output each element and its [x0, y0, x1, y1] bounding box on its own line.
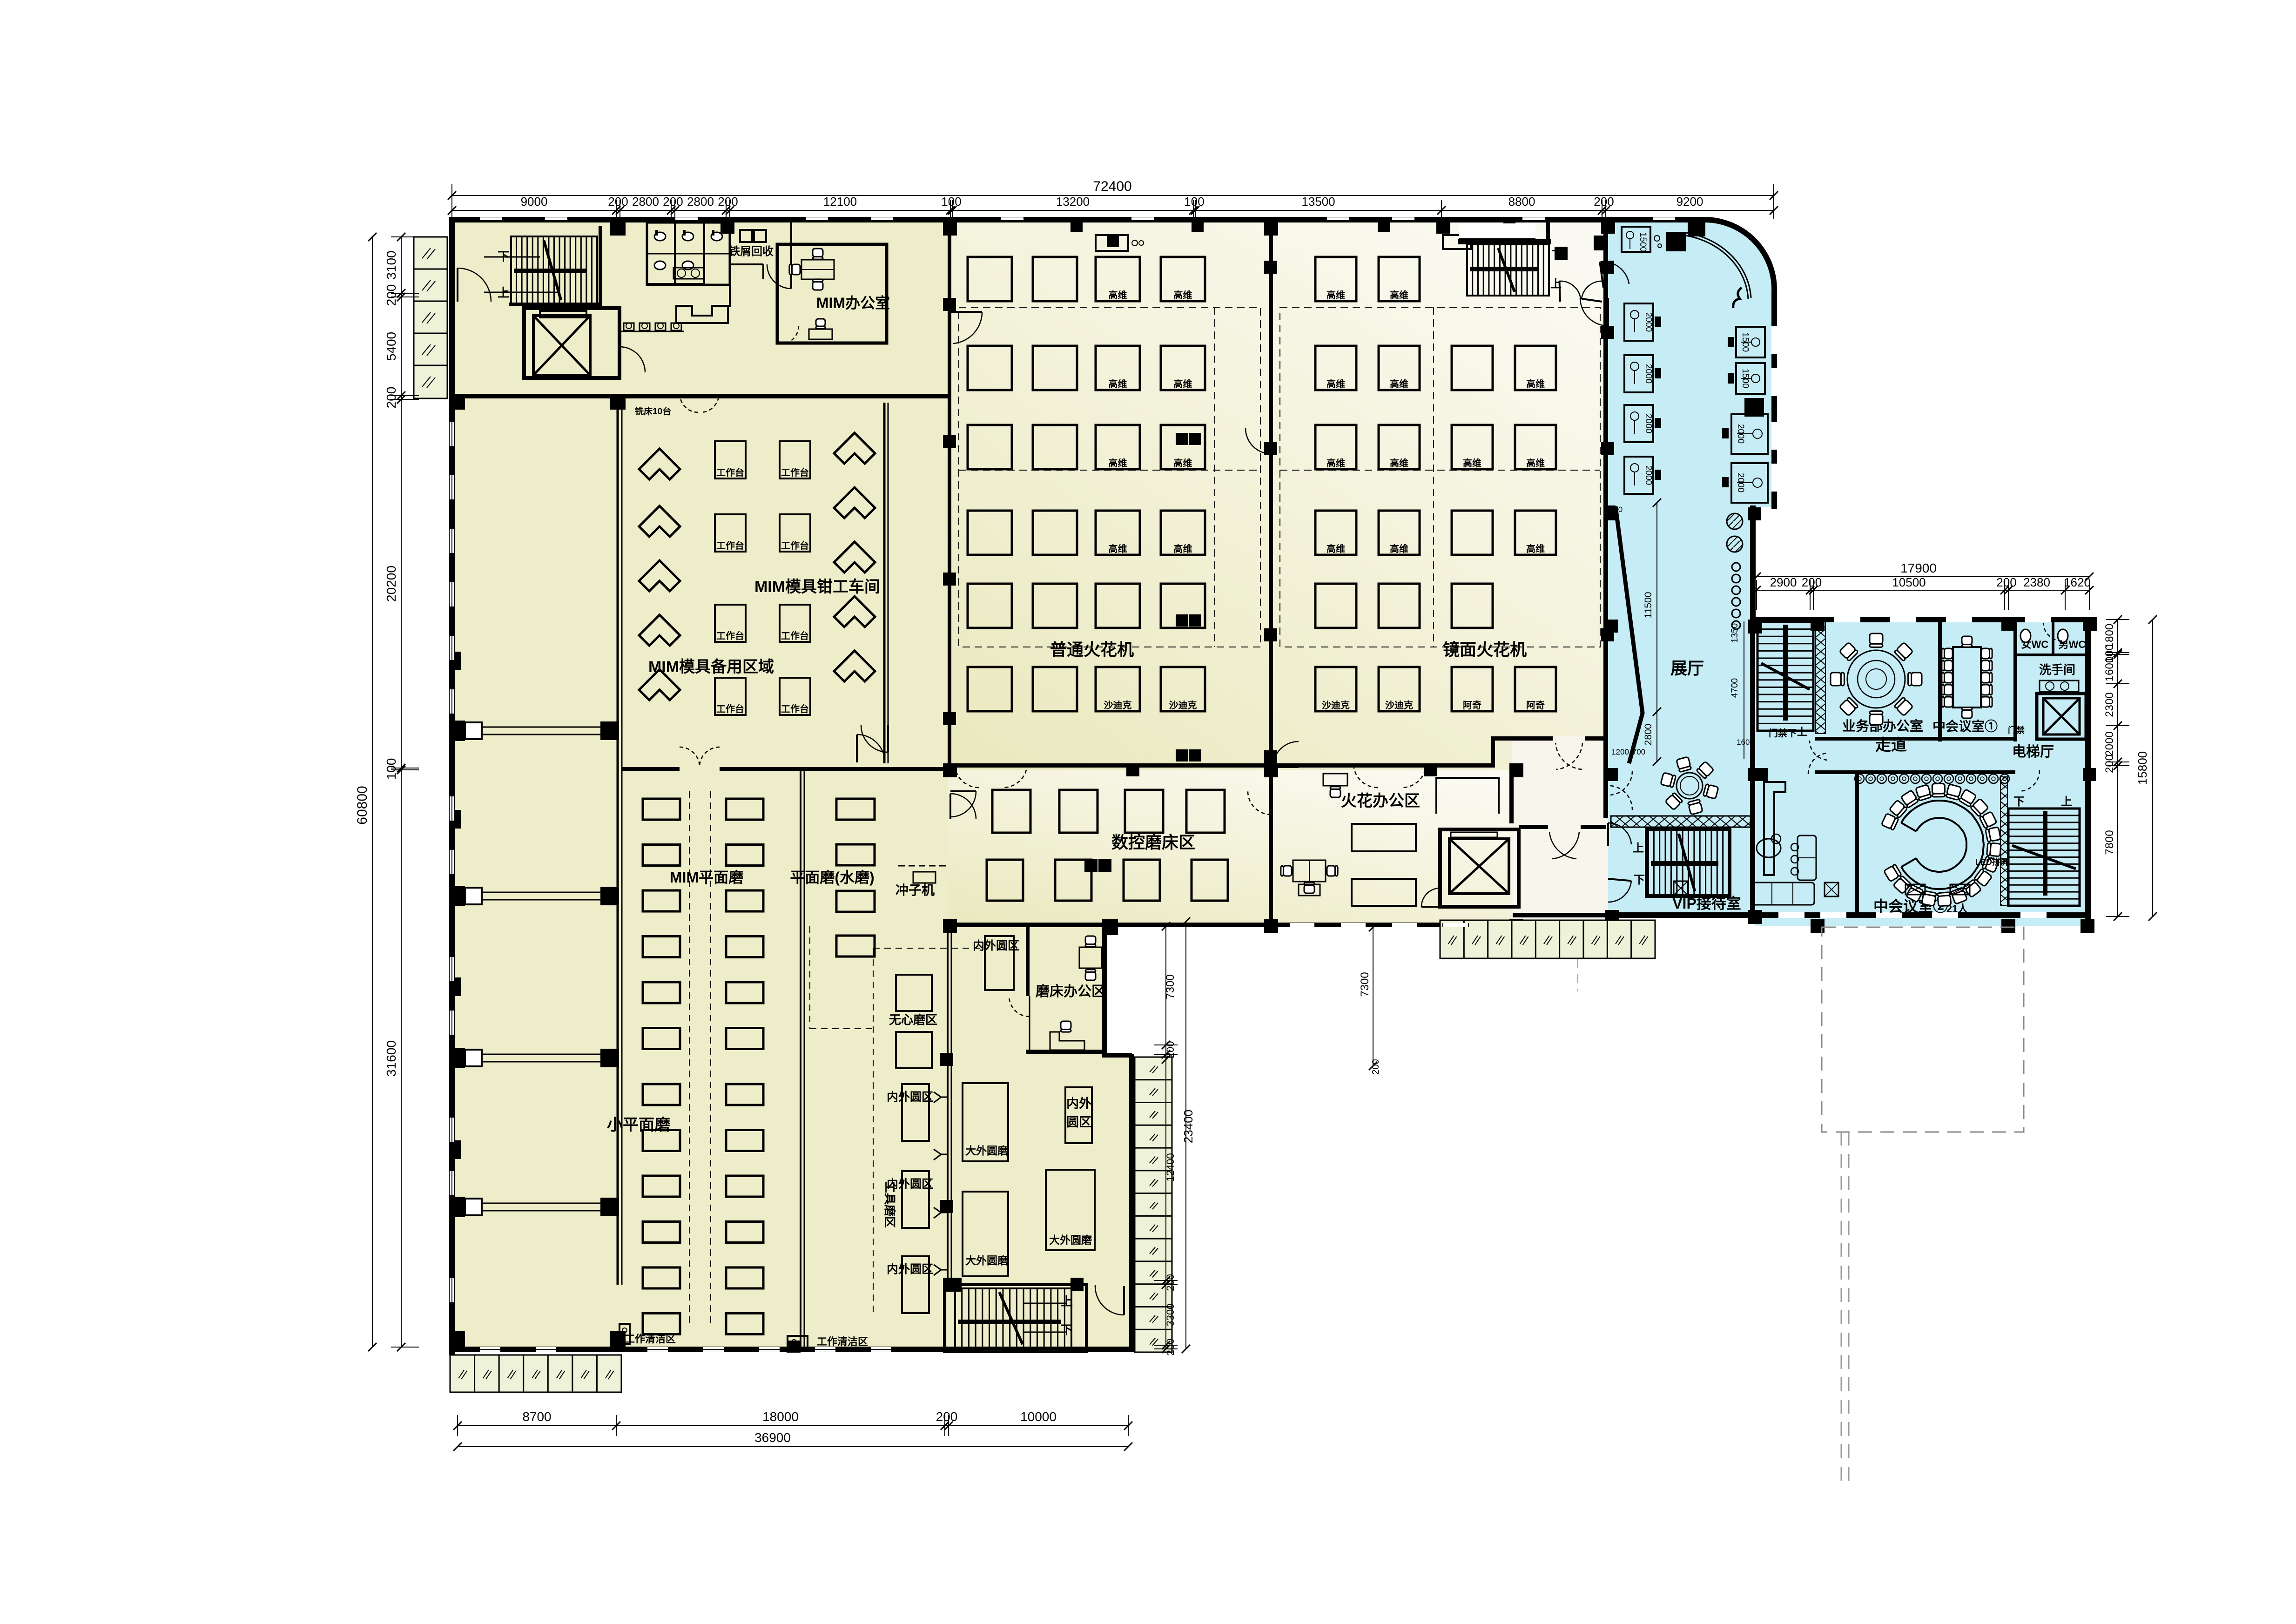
- svg-text:7300: 7300: [1359, 972, 1371, 997]
- svg-text:3300: 3300: [1165, 1304, 1176, 1327]
- svg-text:10500: 10500: [1892, 575, 1926, 589]
- svg-text:沙迪克: 沙迪克: [1169, 700, 1197, 711]
- svg-text:中会议室②: 中会议室②: [1873, 898, 1948, 915]
- svg-text:2000: 2000: [1736, 424, 1745, 444]
- svg-text:无心磨区: 无心磨区: [889, 1013, 937, 1027]
- svg-text:100: 100: [384, 758, 398, 780]
- svg-text:VIP接待室: VIP接待室: [1672, 895, 1741, 912]
- svg-text:7800: 7800: [2103, 830, 2116, 855]
- svg-text:高维: 高维: [1326, 378, 1345, 390]
- svg-text:沙迪克: 沙迪克: [1385, 700, 1413, 711]
- svg-text:铁屑回收: 铁屑回收: [729, 245, 774, 258]
- svg-text:上: 上: [1797, 726, 1807, 738]
- svg-text:小平面磨: 小平面磨: [607, 1116, 670, 1134]
- svg-text:阿奇: 阿奇: [1463, 700, 1481, 711]
- svg-text:内外圆区: 内外圆区: [887, 1262, 933, 1276]
- svg-text:普通火花机: 普通火花机: [1050, 640, 1134, 659]
- svg-text:高维: 高维: [1390, 458, 1408, 469]
- svg-text:工作台: 工作台: [716, 540, 744, 551]
- svg-text:12400: 12400: [1165, 1153, 1176, 1181]
- svg-text:高维: 高维: [1463, 458, 1481, 469]
- svg-text:电梯厅: 电梯厅: [2012, 744, 2054, 760]
- svg-text:2000: 2000: [1736, 473, 1745, 492]
- svg-text:4700: 4700: [1730, 678, 1740, 698]
- svg-text:12100: 12100: [823, 195, 857, 209]
- svg-text:阿奇: 阿奇: [1526, 700, 1545, 711]
- svg-text:200: 200: [1802, 575, 1822, 589]
- svg-text:高维: 高维: [1390, 378, 1408, 390]
- svg-text:工作台: 工作台: [716, 467, 744, 478]
- svg-text:展厅: 展厅: [1670, 659, 1704, 678]
- svg-text:上: 上: [1061, 1294, 1073, 1308]
- svg-text:MIM平面磨: MIM平面磨: [670, 869, 743, 886]
- svg-text:18000: 18000: [762, 1409, 799, 1424]
- svg-text:下: 下: [1634, 874, 1645, 886]
- svg-text:200: 200: [608, 195, 628, 209]
- svg-text:铣床10台: 铣床10台: [635, 406, 671, 417]
- svg-text:门禁下: 门禁下: [1769, 728, 1797, 739]
- svg-text:200: 200: [1371, 1059, 1381, 1074]
- svg-text:2000: 2000: [1643, 312, 1653, 332]
- svg-text:2380: 2380: [2023, 575, 2050, 589]
- svg-text:高维: 高维: [1326, 458, 1345, 469]
- svg-text:10000: 10000: [1020, 1409, 1057, 1424]
- svg-text:冲子机: 冲子机: [896, 883, 935, 897]
- svg-text:200: 200: [1165, 1041, 1176, 1058]
- svg-text:洗手间: 洗手间: [2039, 663, 2075, 677]
- svg-text:5400: 5400: [384, 332, 398, 361]
- svg-text:15800: 15800: [2135, 751, 2149, 785]
- svg-text:高维: 高维: [1526, 458, 1545, 469]
- svg-text:2000: 2000: [1643, 465, 1653, 485]
- svg-text:数控磨床区: 数控磨床区: [1111, 833, 1195, 852]
- svg-text:高维: 高维: [1174, 543, 1192, 554]
- svg-text:200: 200: [663, 195, 683, 209]
- svg-text:LED拼屏: LED拼屏: [1975, 857, 2009, 867]
- svg-text:沙迪克: 沙迪克: [1104, 700, 1132, 711]
- svg-text:大外圆磨: 大外圆磨: [965, 1145, 1008, 1157]
- svg-text:内外圆区: 内外圆区: [887, 1177, 933, 1191]
- svg-text:平面磨(水磨): 平面磨(水磨): [790, 869, 874, 886]
- svg-text:100: 100: [1184, 195, 1204, 209]
- svg-text:200: 200: [936, 1409, 958, 1424]
- svg-text:高维: 高维: [1174, 378, 1192, 390]
- svg-text:200: 200: [1996, 575, 2016, 589]
- svg-text:镜面火花机: 镜面火花机: [1443, 640, 1527, 659]
- svg-text:600: 600: [1609, 505, 1623, 514]
- svg-text:20200: 20200: [384, 566, 398, 602]
- svg-text:8800: 8800: [1508, 195, 1535, 209]
- svg-text:1500: 1500: [1740, 332, 1750, 352]
- svg-text:2900: 2900: [1770, 575, 1797, 589]
- svg-text:高维: 高维: [1109, 458, 1127, 469]
- svg-text:2800: 2800: [1643, 724, 1654, 746]
- svg-text:2300: 2300: [2103, 692, 2116, 717]
- svg-text:工作清洁区: 工作清洁区: [817, 1336, 868, 1348]
- svg-text:1500: 1500: [1638, 232, 1648, 252]
- svg-text:内外圆区: 内外圆区: [973, 939, 1019, 952]
- svg-text:高维: 高维: [1109, 378, 1127, 390]
- svg-text:2000: 2000: [1643, 364, 1653, 384]
- svg-text:1600: 1600: [1737, 738, 1754, 747]
- svg-text:内外圆区: 内外圆区: [887, 1090, 933, 1104]
- svg-text:下: 下: [1551, 249, 1562, 262]
- svg-text:13200: 13200: [1056, 195, 1090, 209]
- svg-text:沙迪克: 沙迪克: [1322, 700, 1350, 711]
- svg-text:工作清洁区: 工作清洁区: [625, 1333, 676, 1345]
- svg-text:高维: 高维: [1390, 290, 1408, 301]
- svg-text:MIM模具钳工车间: MIM模具钳工车间: [754, 578, 880, 596]
- svg-text:200: 200: [1165, 1339, 1176, 1356]
- svg-text:工作台: 工作台: [781, 540, 809, 551]
- svg-text:圆区: 圆区: [1066, 1115, 1091, 1129]
- svg-text:60800: 60800: [355, 786, 370, 824]
- svg-text:MIM模具备用区域: MIM模具备用区域: [648, 658, 774, 676]
- svg-text:2000: 2000: [2103, 731, 2116, 756]
- svg-text:23400: 23400: [1181, 1110, 1195, 1143]
- svg-text:700: 700: [1632, 748, 1645, 756]
- svg-text:中会议室①: 中会议室①: [1932, 719, 1998, 734]
- svg-text:高维: 高维: [1326, 290, 1345, 301]
- svg-text:3100: 3100: [384, 250, 398, 279]
- svg-text:工作台: 工作台: [781, 467, 809, 478]
- svg-text:上: 上: [2061, 795, 2072, 808]
- svg-text:1620: 1620: [2064, 575, 2091, 589]
- svg-text:高维: 高维: [1109, 543, 1127, 554]
- svg-text:31600: 31600: [384, 1040, 398, 1077]
- svg-text:高维: 高维: [1526, 543, 1545, 554]
- svg-text:200: 200: [718, 195, 738, 209]
- svg-text:高维: 高维: [1109, 290, 1127, 301]
- svg-text:1500: 1500: [1740, 369, 1750, 388]
- svg-text:大外圆磨: 大外圆磨: [965, 1254, 1008, 1267]
- svg-text:工作台: 工作台: [716, 630, 744, 641]
- svg-text:下: 下: [2013, 795, 2025, 808]
- svg-text:大外圆磨: 大外圆磨: [1049, 1234, 1092, 1246]
- svg-text:工作台: 工作台: [781, 703, 809, 714]
- svg-text:72400: 72400: [1093, 179, 1131, 194]
- svg-text:200: 200: [384, 387, 398, 409]
- svg-text:磨床办公区: 磨床办公区: [1036, 984, 1105, 999]
- svg-text:高维: 高维: [1526, 378, 1545, 390]
- svg-text:下: 下: [1061, 1323, 1073, 1337]
- svg-text:上: 上: [1633, 842, 1644, 855]
- svg-text:高维: 高维: [1174, 290, 1192, 301]
- svg-text:9200: 9200: [1677, 195, 1703, 209]
- svg-text:200: 200: [1594, 195, 1614, 209]
- svg-text:36900: 36900: [754, 1430, 791, 1445]
- svg-text:8700: 8700: [522, 1409, 551, 1424]
- svg-text:门禁: 门禁: [2008, 725, 2025, 735]
- svg-text:1600: 1600: [2103, 657, 2116, 681]
- svg-text:MIM办公室: MIM办公室: [816, 295, 890, 311]
- svg-text:高维: 高维: [1326, 543, 1345, 554]
- svg-text:13500: 13500: [1301, 195, 1335, 209]
- svg-text:内外: 内外: [1066, 1097, 1091, 1111]
- svg-text:高维: 高维: [1390, 543, 1408, 554]
- svg-text:2800: 2800: [687, 195, 714, 209]
- svg-text:200: 200: [384, 284, 398, 306]
- svg-text:2800: 2800: [632, 195, 659, 209]
- svg-text:11500: 11500: [1643, 592, 1654, 619]
- svg-text:200: 200: [2103, 755, 2116, 773]
- svg-text:9000: 9000: [521, 195, 548, 209]
- svg-text:1200: 1200: [1611, 748, 1629, 756]
- svg-text:200: 200: [1165, 1274, 1176, 1291]
- svg-text:2000: 2000: [1643, 414, 1653, 433]
- svg-text:高维: 高维: [1174, 458, 1192, 469]
- svg-text:100: 100: [941, 195, 961, 209]
- svg-text:工作台: 工作台: [716, 703, 744, 714]
- svg-text:17900: 17900: [1900, 561, 1937, 575]
- svg-text:1350: 1350: [1730, 623, 1740, 643]
- svg-text:火花办公区: 火花办公区: [1341, 792, 1420, 810]
- svg-text:7300: 7300: [1164, 974, 1177, 999]
- svg-text:工作台: 工作台: [781, 630, 809, 641]
